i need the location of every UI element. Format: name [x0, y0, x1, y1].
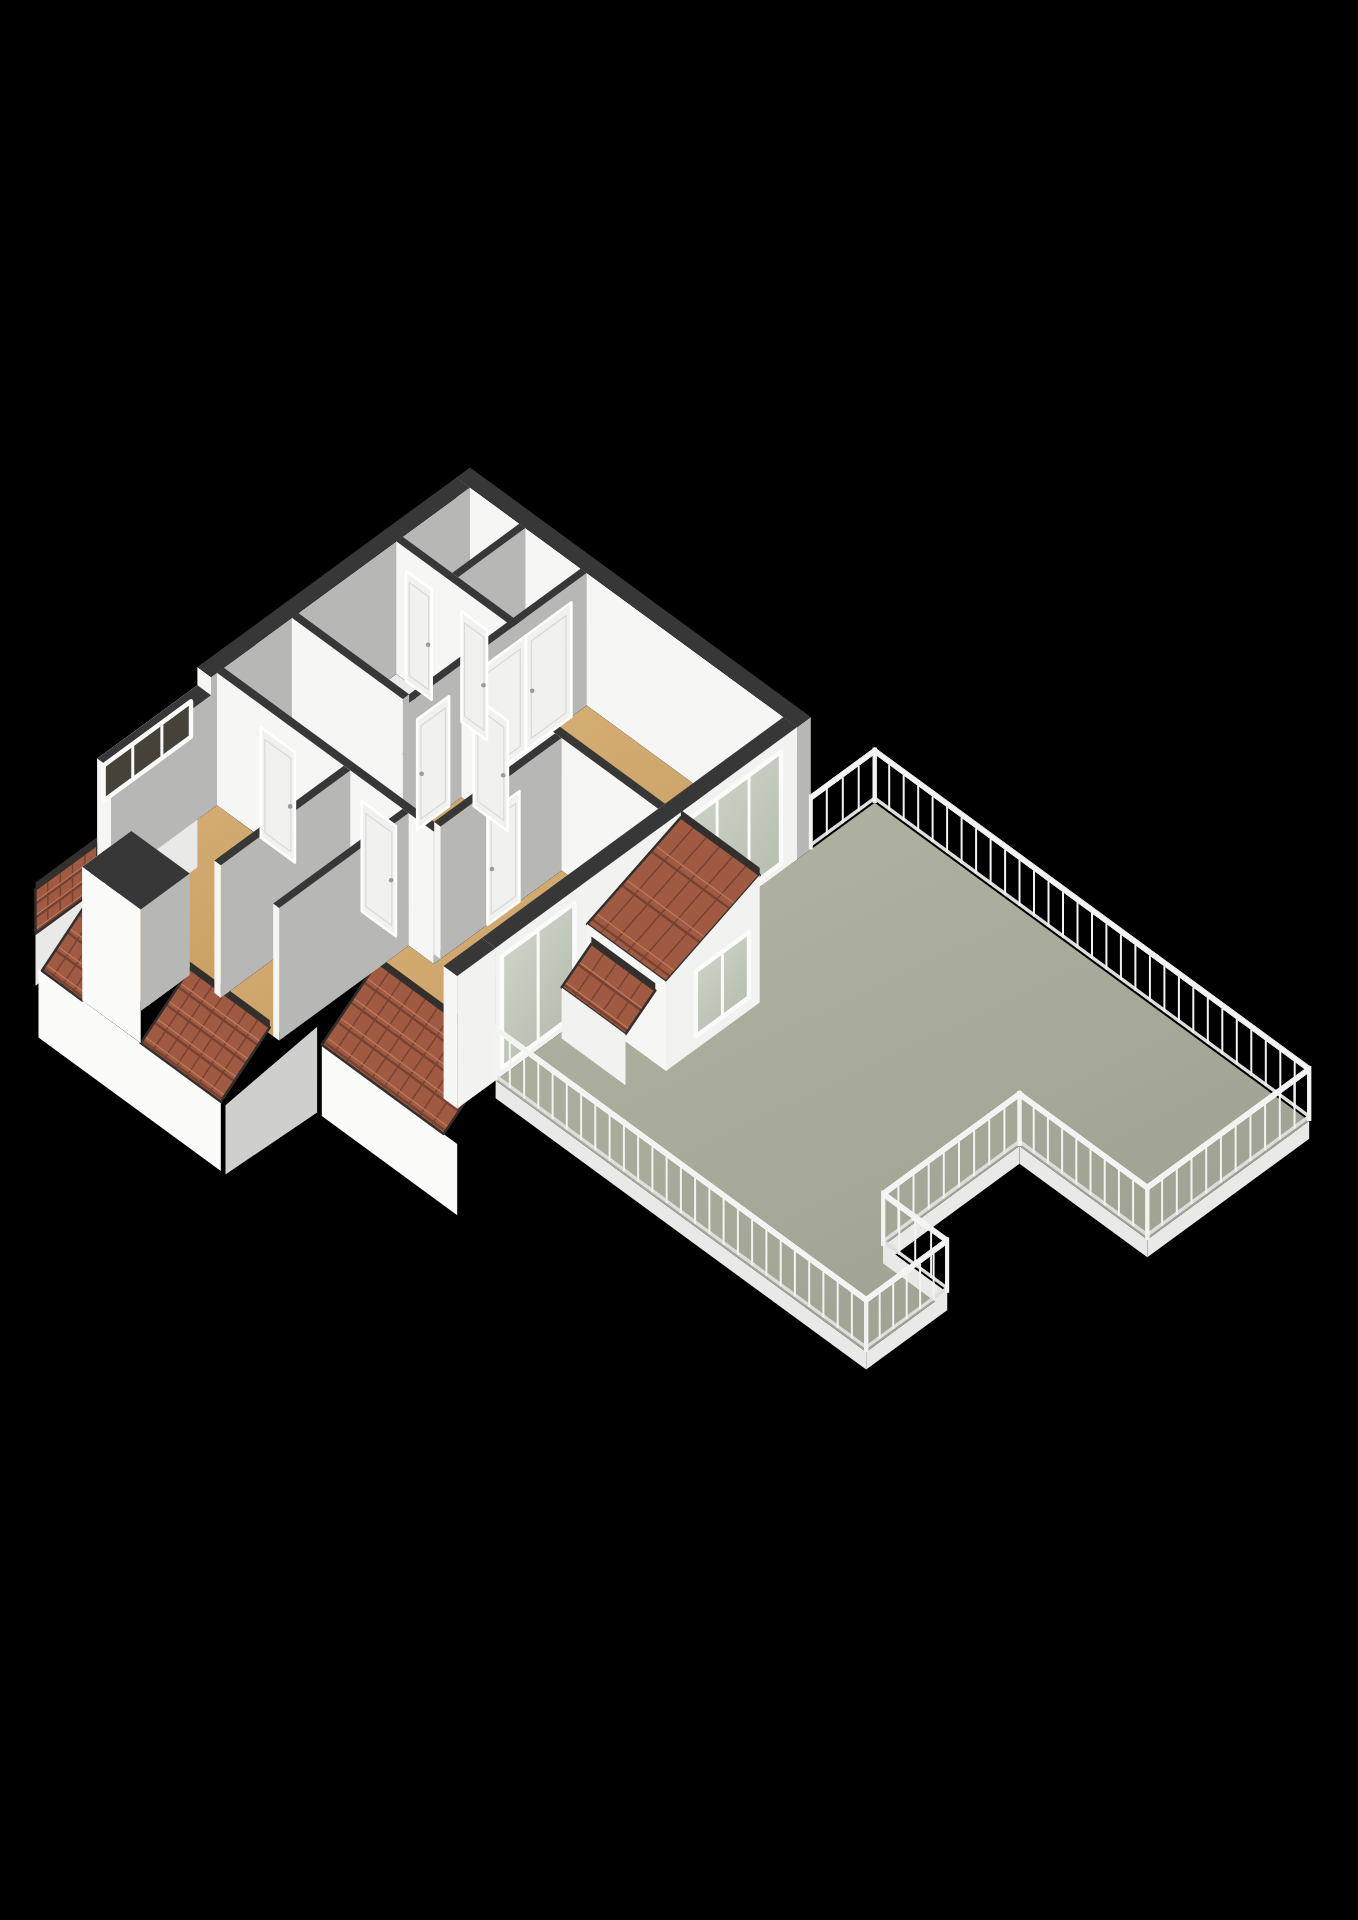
door-handle: [419, 772, 424, 777]
door-handle: [481, 683, 486, 688]
door-handle: [426, 642, 431, 647]
floorplan-viewport[interactable]: [0, 0, 1358, 1920]
door-closet-1: [406, 571, 432, 700]
wall-se-corner-stub: [444, 938, 496, 1109]
door-handle: [501, 773, 506, 778]
door-bathroom: [417, 696, 449, 830]
door-closet-2: [462, 611, 488, 740]
door-bedroom-smid: [362, 801, 396, 936]
door-handle: [490, 867, 495, 872]
door-handle: [530, 688, 535, 693]
floorplan-scene: [0, 0, 1358, 1920]
door-bedroom-sw: [261, 727, 295, 862]
door-handle: [389, 878, 394, 883]
door-handle: [288, 804, 293, 809]
